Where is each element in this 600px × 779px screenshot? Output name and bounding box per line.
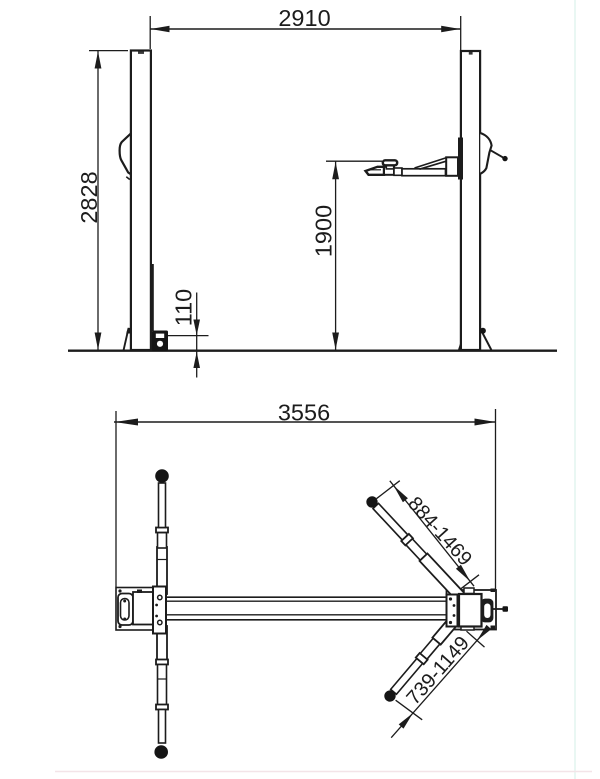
svg-text:2828: 2828 (76, 171, 102, 223)
svg-text:3556: 3556 (278, 400, 330, 426)
svg-text:1900: 1900 (311, 205, 337, 257)
svg-text:2910: 2910 (278, 5, 330, 31)
svg-text:110: 110 (171, 289, 197, 326)
